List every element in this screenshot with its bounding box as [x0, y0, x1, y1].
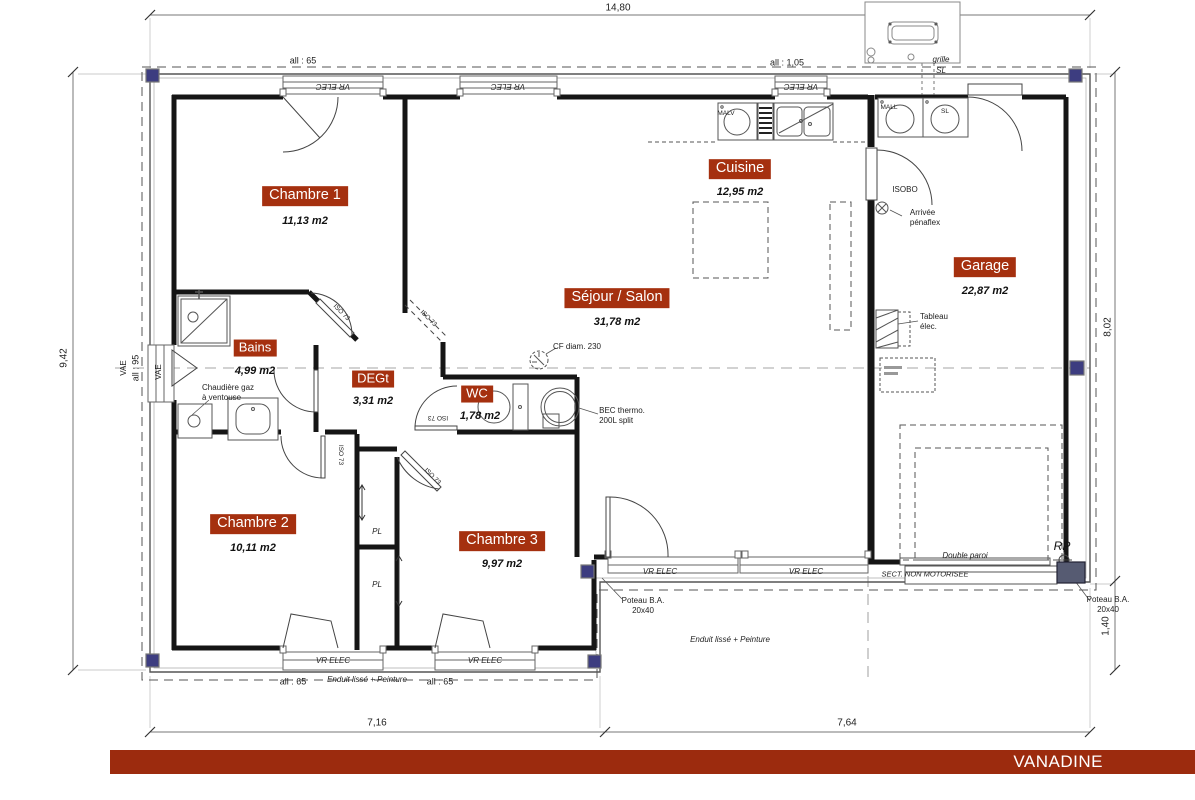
room-label-cuisine: Cuisine — [709, 159, 771, 179]
room-label-sejour: Séjour / Salon — [564, 288, 669, 308]
dimension-total-width: 14,80 — [605, 3, 630, 14]
room-label-chambre3: Chambre 3 — [459, 531, 545, 551]
lintel-label-bottom2: all : 65 — [427, 676, 454, 687]
shutter-label-chambre3-window: VR ELEC — [468, 656, 502, 666]
shutter-label-bay1: VR ELEC — [643, 567, 677, 577]
post-note-right: Poteau B.A. 20x40 — [1087, 595, 1130, 615]
brand-name: VANADINE — [1013, 752, 1103, 772]
double-wall-note: Double paroi — [942, 551, 987, 561]
shutter-label-chambre2-window: VR ELEC — [316, 656, 350, 666]
room-label-chambre1: Chambre 1 — [262, 186, 348, 206]
kitchen-fixtures — [648, 103, 868, 330]
lintel-label-kitchen: all : 1,05 — [770, 57, 804, 68]
door-size-chambre2: ISO 73 — [336, 445, 344, 465]
room-label-chambre2: Chambre 2 — [210, 514, 296, 534]
lintel-label-left: all : 95 — [130, 355, 141, 382]
closet-label-2: PL — [372, 580, 382, 590]
dimension-bottom-right: 7,64 — [837, 718, 856, 729]
room-area-garage: 22,87 m2 — [962, 285, 1008, 297]
room-label-wc: WC — [461, 386, 493, 403]
vent-detail-box — [865, 2, 960, 63]
cf-duct-note: CF diam. 230 — [553, 342, 601, 352]
room-area-sejour: 31,78 m2 — [594, 316, 640, 328]
room-area-chambre1: 11,13 m2 — [282, 215, 328, 227]
shutter-label-window1: VR ELEC — [316, 81, 350, 91]
floorplan-page: Chambre 1 11,13 m2 Cuisine 12,95 m2 Séjo… — [0, 0, 1195, 800]
room-label-bains: Bains — [234, 340, 277, 357]
sl-duct-label: SL — [936, 66, 946, 76]
dryer-label: SL — [941, 108, 949, 116]
room-label-garage: Garage — [954, 257, 1016, 277]
vae-label-outside: VAE — [119, 360, 129, 375]
lintel-label-top-left: all : 65 — [290, 55, 317, 66]
room-area-degt: 3,31 m2 — [353, 395, 393, 407]
electrical-panel-note: Tableau élec. — [920, 312, 948, 332]
room-area-chambre3: 9,97 m2 — [482, 558, 522, 570]
garage-door-size: ISOBO — [892, 185, 917, 195]
leader-lines — [192, 63, 1090, 601]
dimension-right-height: 8,02 — [1103, 317, 1114, 336]
dimension-bottom-left: 7,16 — [367, 718, 386, 729]
garage-fixtures — [876, 98, 1062, 560]
grille-label: grille — [933, 55, 950, 65]
water-heater-note: BEC thermo. 200L split — [599, 406, 645, 426]
room-label-degt: DEGt — [352, 371, 394, 388]
floorplan-drawing — [0, 0, 1195, 800]
room-area-chambre2: 10,11 m2 — [230, 542, 276, 554]
vae-label-window: VAE — [154, 364, 164, 379]
shutter-label-bay2: VR ELEC — [789, 567, 823, 577]
door-size-wc: ISO 73 — [428, 413, 448, 421]
room-area-cuisine: 12,95 m2 — [717, 186, 763, 198]
garage-door-type-note: SECT. NON MOTORISEE — [881, 569, 968, 578]
rp-label: RP — [1054, 539, 1071, 553]
dishwasher-label: MALV — [717, 110, 734, 118]
shutter-label-kitchen-window: VR ELEC — [784, 81, 818, 91]
boiler-note: Chaudière gaz à ventouse — [202, 383, 254, 403]
shutter-label-window2: VR ELEC — [491, 81, 525, 91]
post-note-left: Poteau B.A. 20x40 — [622, 596, 665, 616]
gas-inlet-note: Arrivée pénaflex — [910, 208, 940, 228]
render-note-bottom-right: Enduit lissé + Peinture — [690, 635, 770, 645]
closet-label-1: PL — [372, 527, 382, 537]
render-note-bottom-left: Enduit lissé + Peinture — [327, 675, 407, 685]
room-area-bains: 4,99 m2 — [235, 365, 275, 377]
dimension-right-lower: 1,40 — [1101, 616, 1112, 635]
brand-bar: VANADINE — [110, 750, 1195, 774]
roof-outline — [142, 67, 1096, 680]
room-area-wc: 1,78 m2 — [460, 410, 500, 422]
washer-label: MALL — [881, 104, 898, 112]
dimension-left-height: 9,42 — [59, 348, 70, 367]
lintel-label-bottom1: all : 65 — [280, 676, 307, 687]
